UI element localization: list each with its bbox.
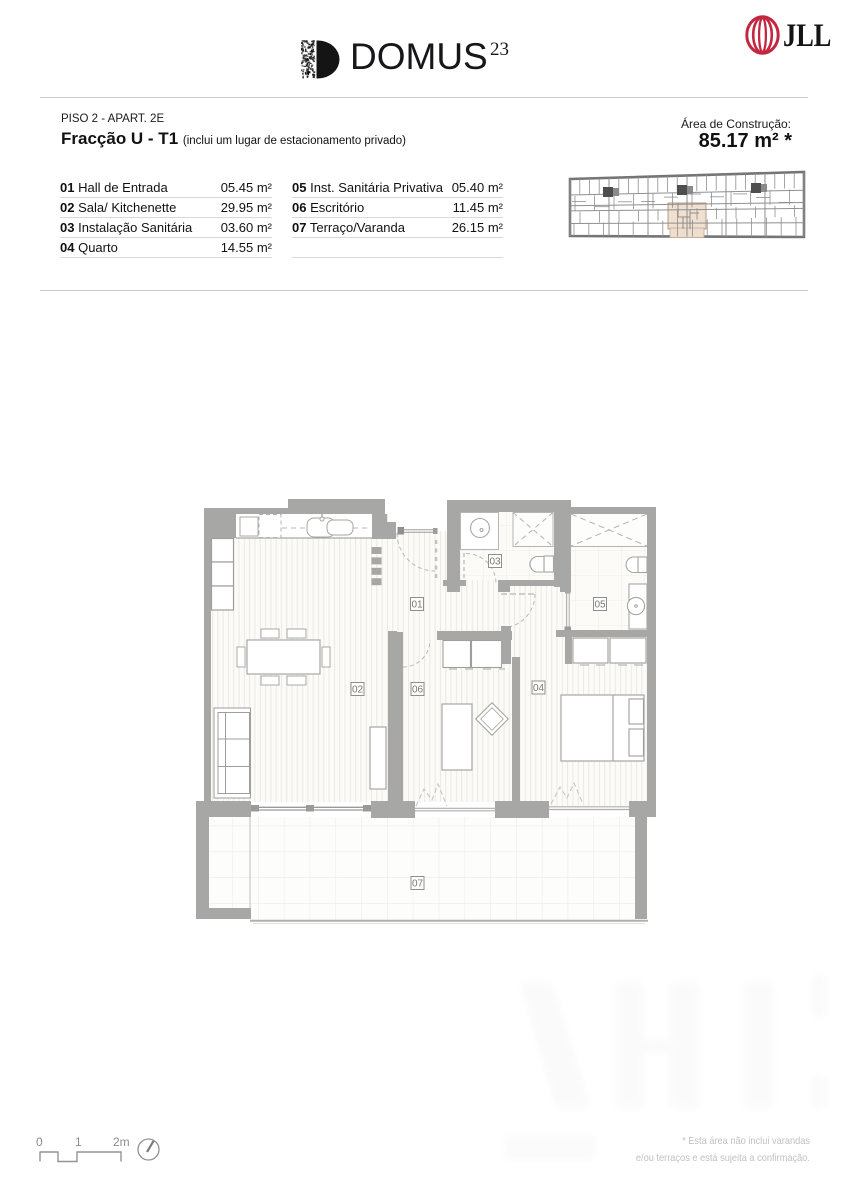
svg-text:0: 0: [36, 1135, 43, 1149]
svg-text:07: 07: [412, 879, 424, 890]
svg-text:01: 01: [411, 600, 423, 611]
svg-text:06: 06: [412, 685, 424, 696]
svg-text:2m: 2m: [113, 1135, 130, 1149]
svg-text:05: 05: [594, 600, 606, 611]
svg-text:JLL: JLL: [783, 17, 831, 53]
svg-text:03: 03: [489, 557, 501, 568]
svg-text:02: 02: [352, 685, 364, 696]
svg-text:04: 04: [533, 683, 545, 694]
svg-text:1: 1: [75, 1135, 82, 1149]
